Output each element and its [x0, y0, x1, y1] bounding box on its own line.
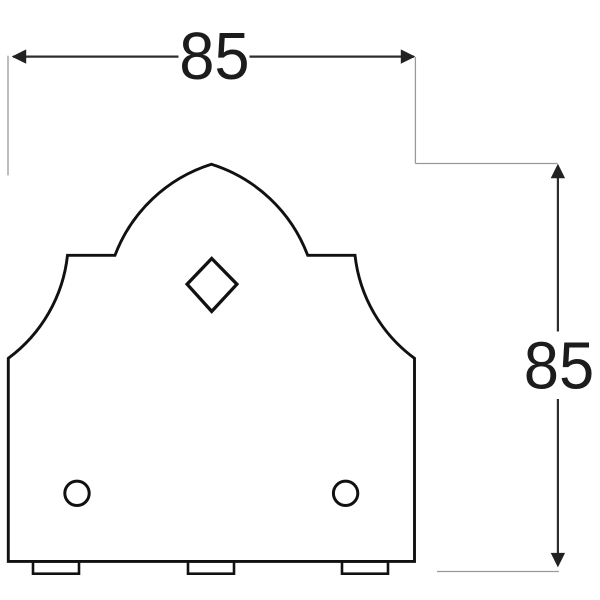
svg-text:85: 85 — [179, 20, 249, 94]
svg-text:85: 85 — [524, 330, 594, 404]
